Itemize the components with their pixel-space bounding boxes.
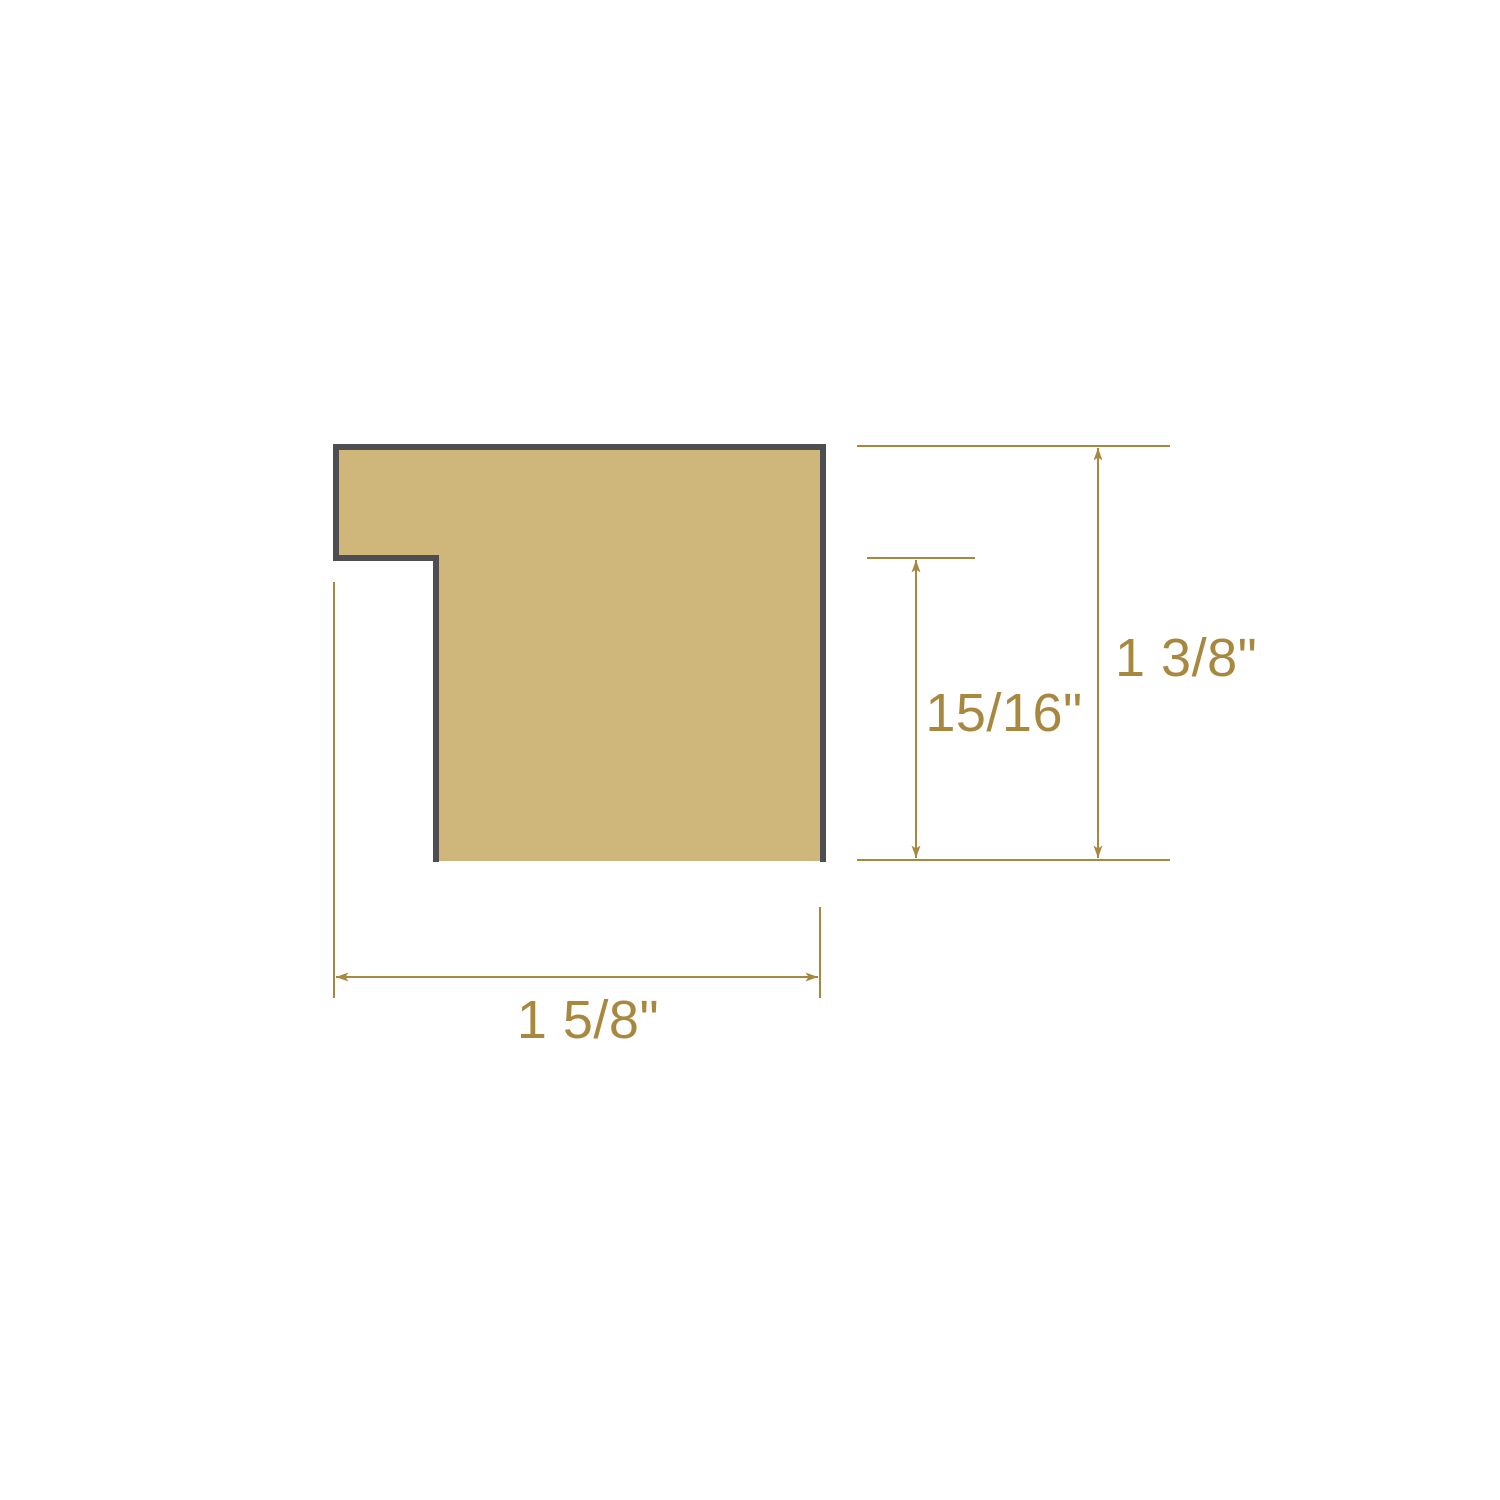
profile-cross-section-fill (336, 447, 823, 861)
moulding-profile-diagram: 1 5/8" 1 3/8" 15/16" (0, 0, 1500, 1500)
diagram-canvas: 1 5/8" 1 3/8" 15/16" (0, 0, 1500, 1500)
width-dimension-label: 1 5/8" (517, 990, 659, 1050)
overall-height-dimension-label: 1 3/8" (1115, 628, 1257, 688)
inner-height-dimension-label: 15/16" (925, 683, 1082, 743)
